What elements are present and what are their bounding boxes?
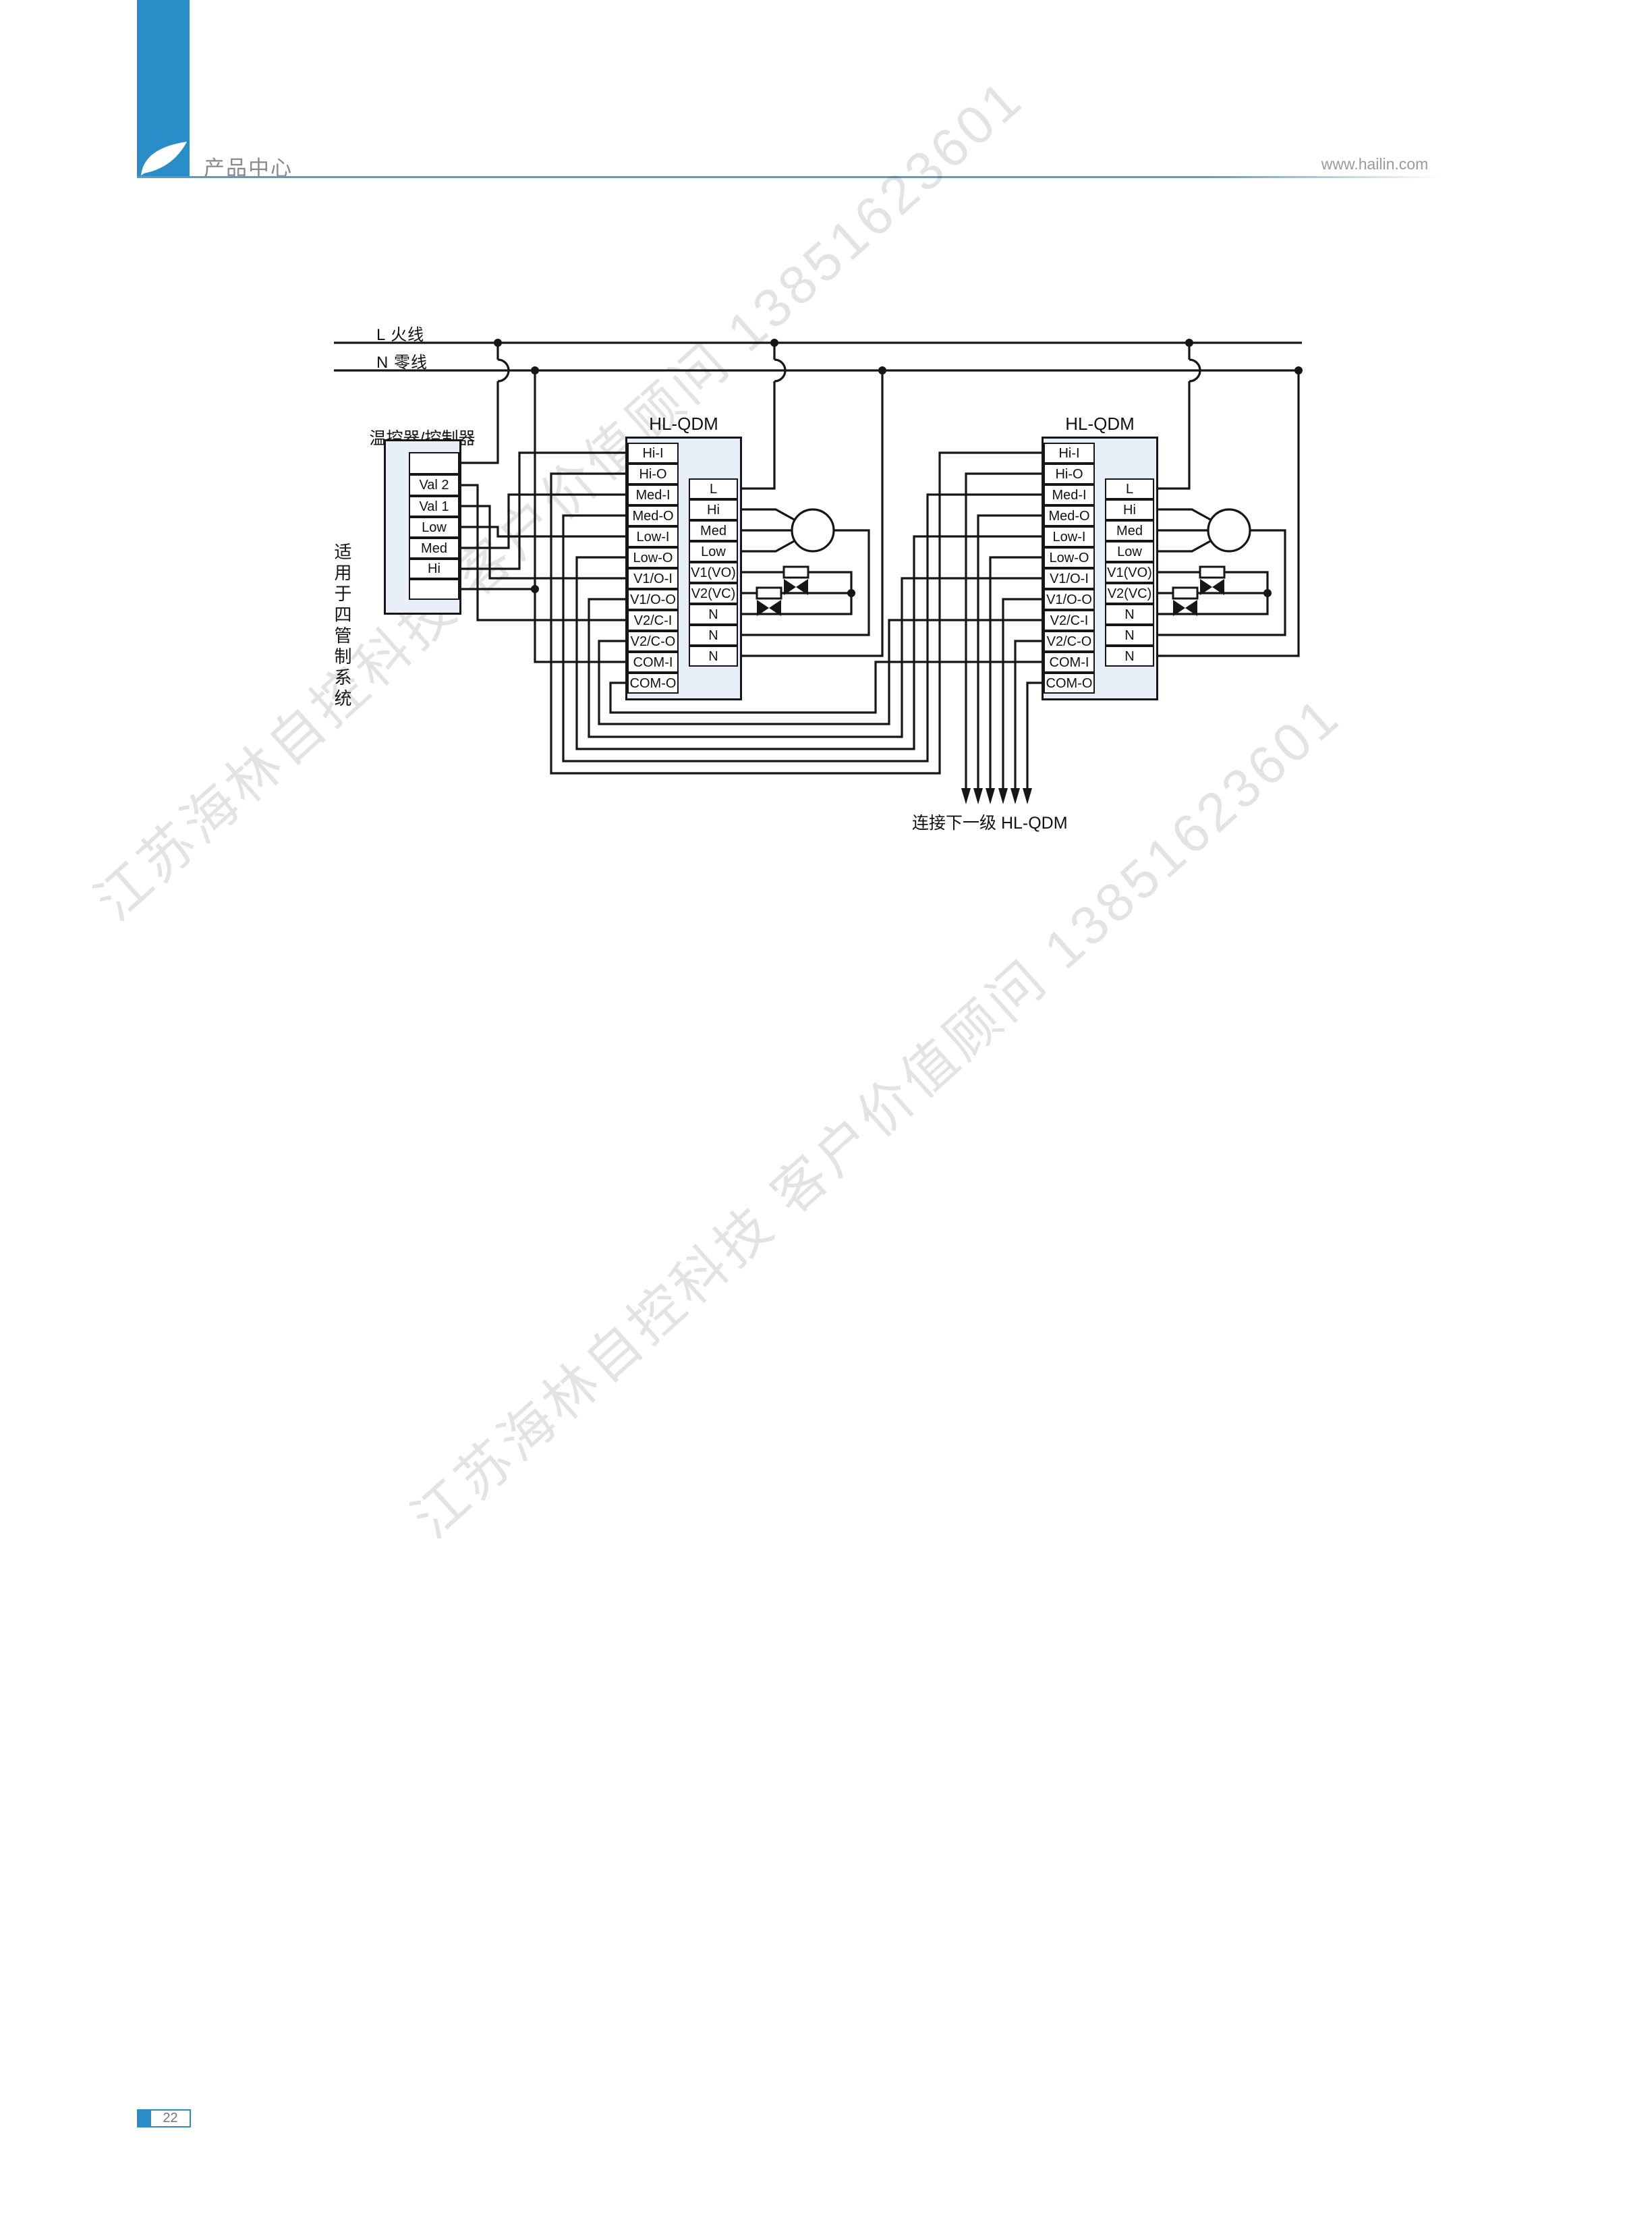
terminal: Med — [689, 520, 738, 541]
terminal: V2(VC) — [689, 583, 738, 604]
terminal: COM-I — [627, 652, 679, 673]
next-stage-note: 连接下一级 HL-QDM — [912, 810, 1068, 834]
terminal: Hi-I — [627, 443, 679, 464]
terminal: Hi — [689, 499, 738, 520]
terminal: Low-O — [627, 547, 679, 568]
terminal: V1/O-I — [1044, 568, 1095, 589]
terminal: COM-O — [1044, 673, 1095, 694]
thermostat-cell — [409, 579, 459, 600]
terminal: N — [1105, 604, 1154, 625]
wiring-diagram — [0, 0, 1652, 2226]
arrow-down-icon — [1023, 788, 1032, 804]
terminal: Hi — [1105, 499, 1154, 520]
thermostat-cell — [409, 452, 459, 474]
terminal: Low — [689, 541, 738, 562]
terminal: Hi-O — [627, 464, 679, 484]
neutral-bus-label: N 零线 — [376, 349, 428, 372]
thermostat-cell: Val 1 — [409, 496, 459, 517]
terminal: Hi-O — [1044, 464, 1095, 484]
thermostat-cell: Hi — [409, 559, 459, 579]
thermostat-cell: Low — [409, 517, 459, 538]
terminal: V2/C-I — [1044, 610, 1095, 631]
arrow-down-icon — [998, 788, 1008, 804]
block2-title: HL-QDM — [1042, 414, 1158, 435]
terminal: N — [689, 625, 738, 646]
live-bus-label: L 火线 — [376, 321, 424, 345]
terminal: L — [689, 478, 738, 499]
thermostat-cell: Med — [409, 538, 459, 559]
terminal: N — [689, 646, 738, 667]
terminal: L — [1105, 478, 1154, 499]
arrow-down-icon — [986, 788, 995, 804]
terminal: Med — [1105, 520, 1154, 541]
terminal: COM-I — [1044, 652, 1095, 673]
next-stage-arrows — [961, 788, 1032, 804]
terminal: Low — [1105, 541, 1154, 562]
page-badge-chip — [138, 2111, 151, 2126]
terminal: V2/C-O — [627, 631, 679, 652]
fan-motor-1 — [792, 509, 834, 551]
arrow-down-icon — [961, 788, 971, 804]
terminal: V1(VO) — [1105, 562, 1154, 583]
terminal: Med-O — [1044, 505, 1095, 526]
terminal: V1/O-O — [1044, 589, 1095, 610]
fan-motor-2 — [1208, 509, 1250, 551]
terminal: Low-I — [627, 526, 679, 547]
thermostat-cell: Val 2 — [409, 474, 459, 496]
terminal: V1(VO) — [689, 562, 738, 583]
terminal: Med-O — [627, 505, 679, 526]
terminal: N — [1105, 646, 1154, 667]
valve-actuator-icon — [757, 588, 781, 599]
terminal: Med-I — [1044, 484, 1095, 505]
terminal: V2/C-O — [1044, 631, 1095, 652]
terminal: Med-I — [627, 484, 679, 505]
valve-actuator-icon — [1173, 588, 1197, 599]
terminal: COM-O — [627, 673, 679, 694]
terminal: V2/C-I — [627, 610, 679, 631]
terminal: Low-I — [1044, 526, 1095, 547]
terminal: V1/O-I — [627, 568, 679, 589]
terminal: N — [689, 604, 738, 625]
catalog-page: { "header": { "title": "产品中心", "url": "w… — [0, 0, 1652, 2226]
valve-actuator-icon — [1200, 567, 1224, 578]
terminal: N — [1105, 625, 1154, 646]
terminal: Hi-I — [1044, 443, 1095, 464]
page-number: 22 — [151, 2111, 190, 2126]
block1-title: HL-QDM — [625, 414, 742, 435]
page-number-badge: 22 — [137, 2109, 191, 2127]
arrow-down-icon — [1010, 788, 1020, 804]
arrow-down-icon — [973, 788, 983, 804]
terminal: V2(VC) — [1105, 583, 1154, 604]
terminal: Low-O — [1044, 547, 1095, 568]
terminal: V1/O-O — [627, 589, 679, 610]
valve-actuator-icon — [784, 567, 808, 578]
